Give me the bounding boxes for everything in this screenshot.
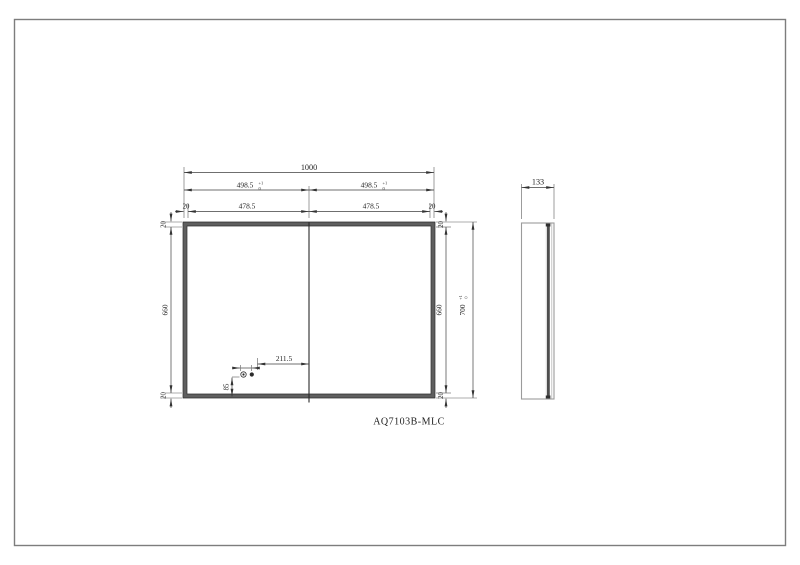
- dim-total-height-label: 700: [458, 304, 467, 315]
- extension-lines: [161, 167, 477, 398]
- dim-inner-width-right-label: 478.5: [363, 202, 380, 211]
- dim-sensor-height-label: 85: [224, 383, 231, 390]
- dim-frame-top-left-label: 20: [183, 203, 190, 210]
- sheet-border: [15, 20, 786, 546]
- front-view: 1000 498.5 +1 0 498.5 +1 0 20 478.5 478.…: [161, 163, 478, 408]
- side-extension-lines: [522, 184, 555, 219]
- drawing-page: 1000 498.5 +1 0 498.5 +1 0 20 478.5 478.…: [0, 0, 800, 565]
- dim-right-frame-top-label: 20: [438, 221, 445, 228]
- dim-left-frame-bottom-label: 20: [161, 392, 168, 399]
- sensor-switch-detail: [241, 372, 254, 377]
- dim-half-width-left-label: 498.5: [237, 180, 254, 189]
- side-mirror-door: [547, 224, 550, 399]
- side-view: 133: [522, 177, 555, 399]
- dim-total-height-tol-bottom: 0: [464, 296, 469, 299]
- side-door-cap-bottom: [546, 396, 551, 399]
- dim-total-height-tol-top: +1: [458, 295, 463, 300]
- dim-depth-label: 133: [532, 177, 544, 186]
- dim-sensor-offset-label: 211.5: [276, 354, 293, 363]
- sensor-inner-dot-icon: [242, 373, 244, 375]
- dim-right-frame-bottom-label: 20: [438, 392, 445, 399]
- dim-left-frame-top-label: 20: [161, 221, 168, 228]
- dim-right-inner-height-label: 660: [435, 304, 444, 315]
- part-number-label: AQ7103B-MLC: [373, 417, 445, 428]
- technical-drawing-canvas: 1000 498.5 +1 0 498.5 +1 0 20 478.5 478.…: [0, 0, 800, 565]
- socket-dot-icon: [250, 372, 254, 376]
- dim-total-width-label: 1000: [301, 163, 317, 172]
- dim-frame-top-right-label: 20: [429, 203, 436, 210]
- dim-half-width-right-label: 498.5: [361, 180, 378, 189]
- side-door-cap-top: [546, 224, 551, 227]
- dim-left-inner-height-label: 660: [161, 304, 170, 315]
- dim-inner-width-left-label: 478.5: [239, 202, 256, 211]
